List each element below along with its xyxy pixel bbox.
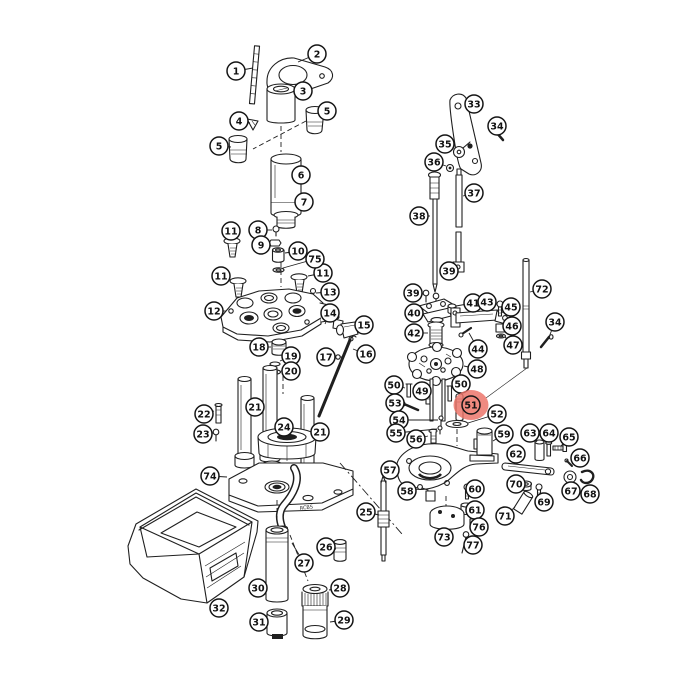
part-pin-50-right	[447, 386, 453, 401]
callout-number-14: 14	[323, 308, 337, 319]
part-screw-55	[438, 426, 442, 434]
callout-number-49: 49	[415, 386, 428, 397]
callout-number-43: 43	[480, 297, 493, 308]
callout-number-1: 1	[233, 66, 240, 77]
part-cap-28	[302, 585, 328, 607]
callout-number-36: 36	[427, 157, 441, 168]
part-roller-71	[513, 490, 533, 514]
callout-number-40: 40	[407, 308, 421, 319]
callout-number-21: 21	[248, 402, 261, 413]
callout-number-22: 22	[197, 409, 210, 420]
callout-number-50: 50	[454, 379, 468, 390]
callout-number-30: 30	[251, 583, 265, 594]
callout-number-39: 39	[406, 288, 419, 299]
part-bolt-64	[546, 442, 552, 456]
part-screw-23	[213, 429, 219, 441]
callout-number-26: 26	[319, 542, 333, 553]
part-cylinder-26	[334, 540, 346, 562]
part-screw-44	[459, 328, 471, 337]
callout-number-29: 29	[337, 615, 350, 626]
part-washer-52	[446, 421, 468, 428]
part-cylinder-59	[474, 428, 492, 455]
part-pin-22	[215, 404, 222, 424]
callout-number-77: 77	[466, 540, 479, 551]
part-washer-47	[497, 334, 506, 338]
callout-number-70: 70	[509, 479, 523, 490]
part-cylinder-63	[535, 440, 544, 461]
callout-number-21: 21	[313, 427, 326, 438]
callout-number-53: 53	[388, 398, 401, 409]
callout-number-11: 11	[224, 226, 237, 237]
callout-number-32: 32	[212, 603, 225, 614]
callout-number-9: 9	[258, 240, 265, 251]
callout-number-23: 23	[196, 429, 209, 440]
part-bolt-11b	[230, 278, 246, 297]
callout-number-16: 16	[359, 349, 373, 360]
part-bushing-5-left	[229, 136, 247, 163]
callout-number-10: 10	[291, 246, 305, 257]
callout-number-74: 74	[203, 471, 217, 482]
callout-number-31: 31	[252, 617, 265, 628]
callout-number-60: 60	[468, 484, 482, 495]
callout-number-69: 69	[537, 497, 550, 508]
callout-number-66: 66	[573, 453, 587, 464]
callout-number-61: 61	[468, 505, 481, 516]
callout-number-18: 18	[252, 342, 266, 353]
part-rod-25	[378, 476, 389, 561]
part-rod-37	[453, 169, 464, 272]
callout-number-42: 42	[407, 328, 420, 339]
callout-number-37: 37	[467, 188, 480, 199]
callout-number-34: 34	[490, 121, 504, 132]
callout-number-56: 56	[409, 434, 423, 445]
callout-number-47: 47	[506, 340, 519, 351]
part-pin-50-left	[406, 384, 412, 397]
part-bar-62	[502, 463, 554, 475]
callout-number-63: 63	[523, 428, 536, 439]
callout-number-46: 46	[505, 321, 519, 332]
part-washer-75	[273, 268, 284, 272]
callout-number-35: 35	[438, 139, 451, 150]
callout-number-45: 45	[504, 302, 517, 313]
callout-number-68: 68	[583, 489, 597, 500]
callout-number-65: 65	[562, 432, 575, 443]
part-disc-67	[564, 471, 576, 483]
callout-number-73: 73	[437, 532, 450, 543]
callout-number-52: 52	[490, 409, 503, 420]
callout-number-50: 50	[387, 380, 401, 391]
callout-number-24: 24	[277, 422, 291, 433]
callout-number-4: 4	[236, 116, 243, 127]
callout-number-8: 8	[255, 225, 262, 236]
callout-number-72: 72	[535, 284, 548, 295]
callout-number-34: 34	[548, 317, 562, 328]
callout-number-11: 11	[214, 271, 227, 282]
callout-number-3: 3	[300, 86, 307, 97]
part-primer-rod-1	[249, 46, 259, 104]
callout-number-38: 38	[412, 211, 426, 222]
part-link-sleeve-3	[267, 84, 295, 123]
callout-number-19: 19	[284, 351, 297, 362]
part-bolt-8	[273, 226, 279, 236]
callout-number-44: 44	[471, 344, 485, 355]
part-cap-73	[430, 506, 464, 529]
callout-number-59: 59	[497, 429, 510, 440]
callout-number-15: 15	[357, 320, 370, 331]
part-nut-9	[269, 240, 281, 246]
parts-diagram-canvas: RCBS	[0, 0, 700, 700]
part-pin-34-lower	[541, 335, 553, 347]
part-rod-38	[429, 172, 441, 292]
callout-number-20: 20	[284, 366, 298, 377]
callout-number-57: 57	[383, 465, 396, 476]
callout-number-48: 48	[470, 364, 484, 375]
part-cup-31	[267, 609, 287, 639]
part-tube-30	[266, 526, 288, 602]
part-nut-36	[447, 165, 454, 172]
callout-number-12: 12	[207, 306, 220, 317]
callout-number-28: 28	[333, 583, 347, 594]
part-clip-68	[581, 471, 593, 483]
callout-number-71: 71	[498, 511, 511, 522]
part-canister-29	[303, 606, 327, 639]
callout-number-7: 7	[301, 197, 308, 208]
part-column-21-left	[235, 377, 254, 469]
part-bin-32	[128, 489, 258, 603]
callout-number-39: 39	[442, 266, 455, 277]
callout-number-64: 64	[542, 428, 556, 439]
callout-number-51: 51	[464, 400, 477, 411]
callout-number-62: 62	[509, 449, 522, 460]
callout-number-25: 25	[359, 507, 372, 518]
callout-number-5: 5	[216, 141, 223, 152]
callout-number-2: 2	[314, 49, 321, 60]
callout-number-6: 6	[298, 170, 305, 181]
callout-number-67: 67	[564, 486, 577, 497]
callout-number-33: 33	[467, 99, 480, 110]
callout-number-76: 76	[472, 522, 486, 533]
callout-number-75: 75	[308, 254, 321, 265]
exploded-diagram: RCBS	[0, 0, 700, 700]
callout-number-55: 55	[389, 428, 402, 439]
callout-number-5: 5	[324, 106, 331, 117]
part-bolt-56	[429, 429, 437, 443]
callout-number-27: 27	[297, 558, 310, 569]
callout-number-58: 58	[400, 486, 414, 497]
callout-number-17: 17	[319, 352, 332, 363]
callout-number-13: 13	[323, 287, 336, 298]
callout-number-11: 11	[316, 268, 329, 279]
part-bushing-10	[273, 248, 285, 262]
